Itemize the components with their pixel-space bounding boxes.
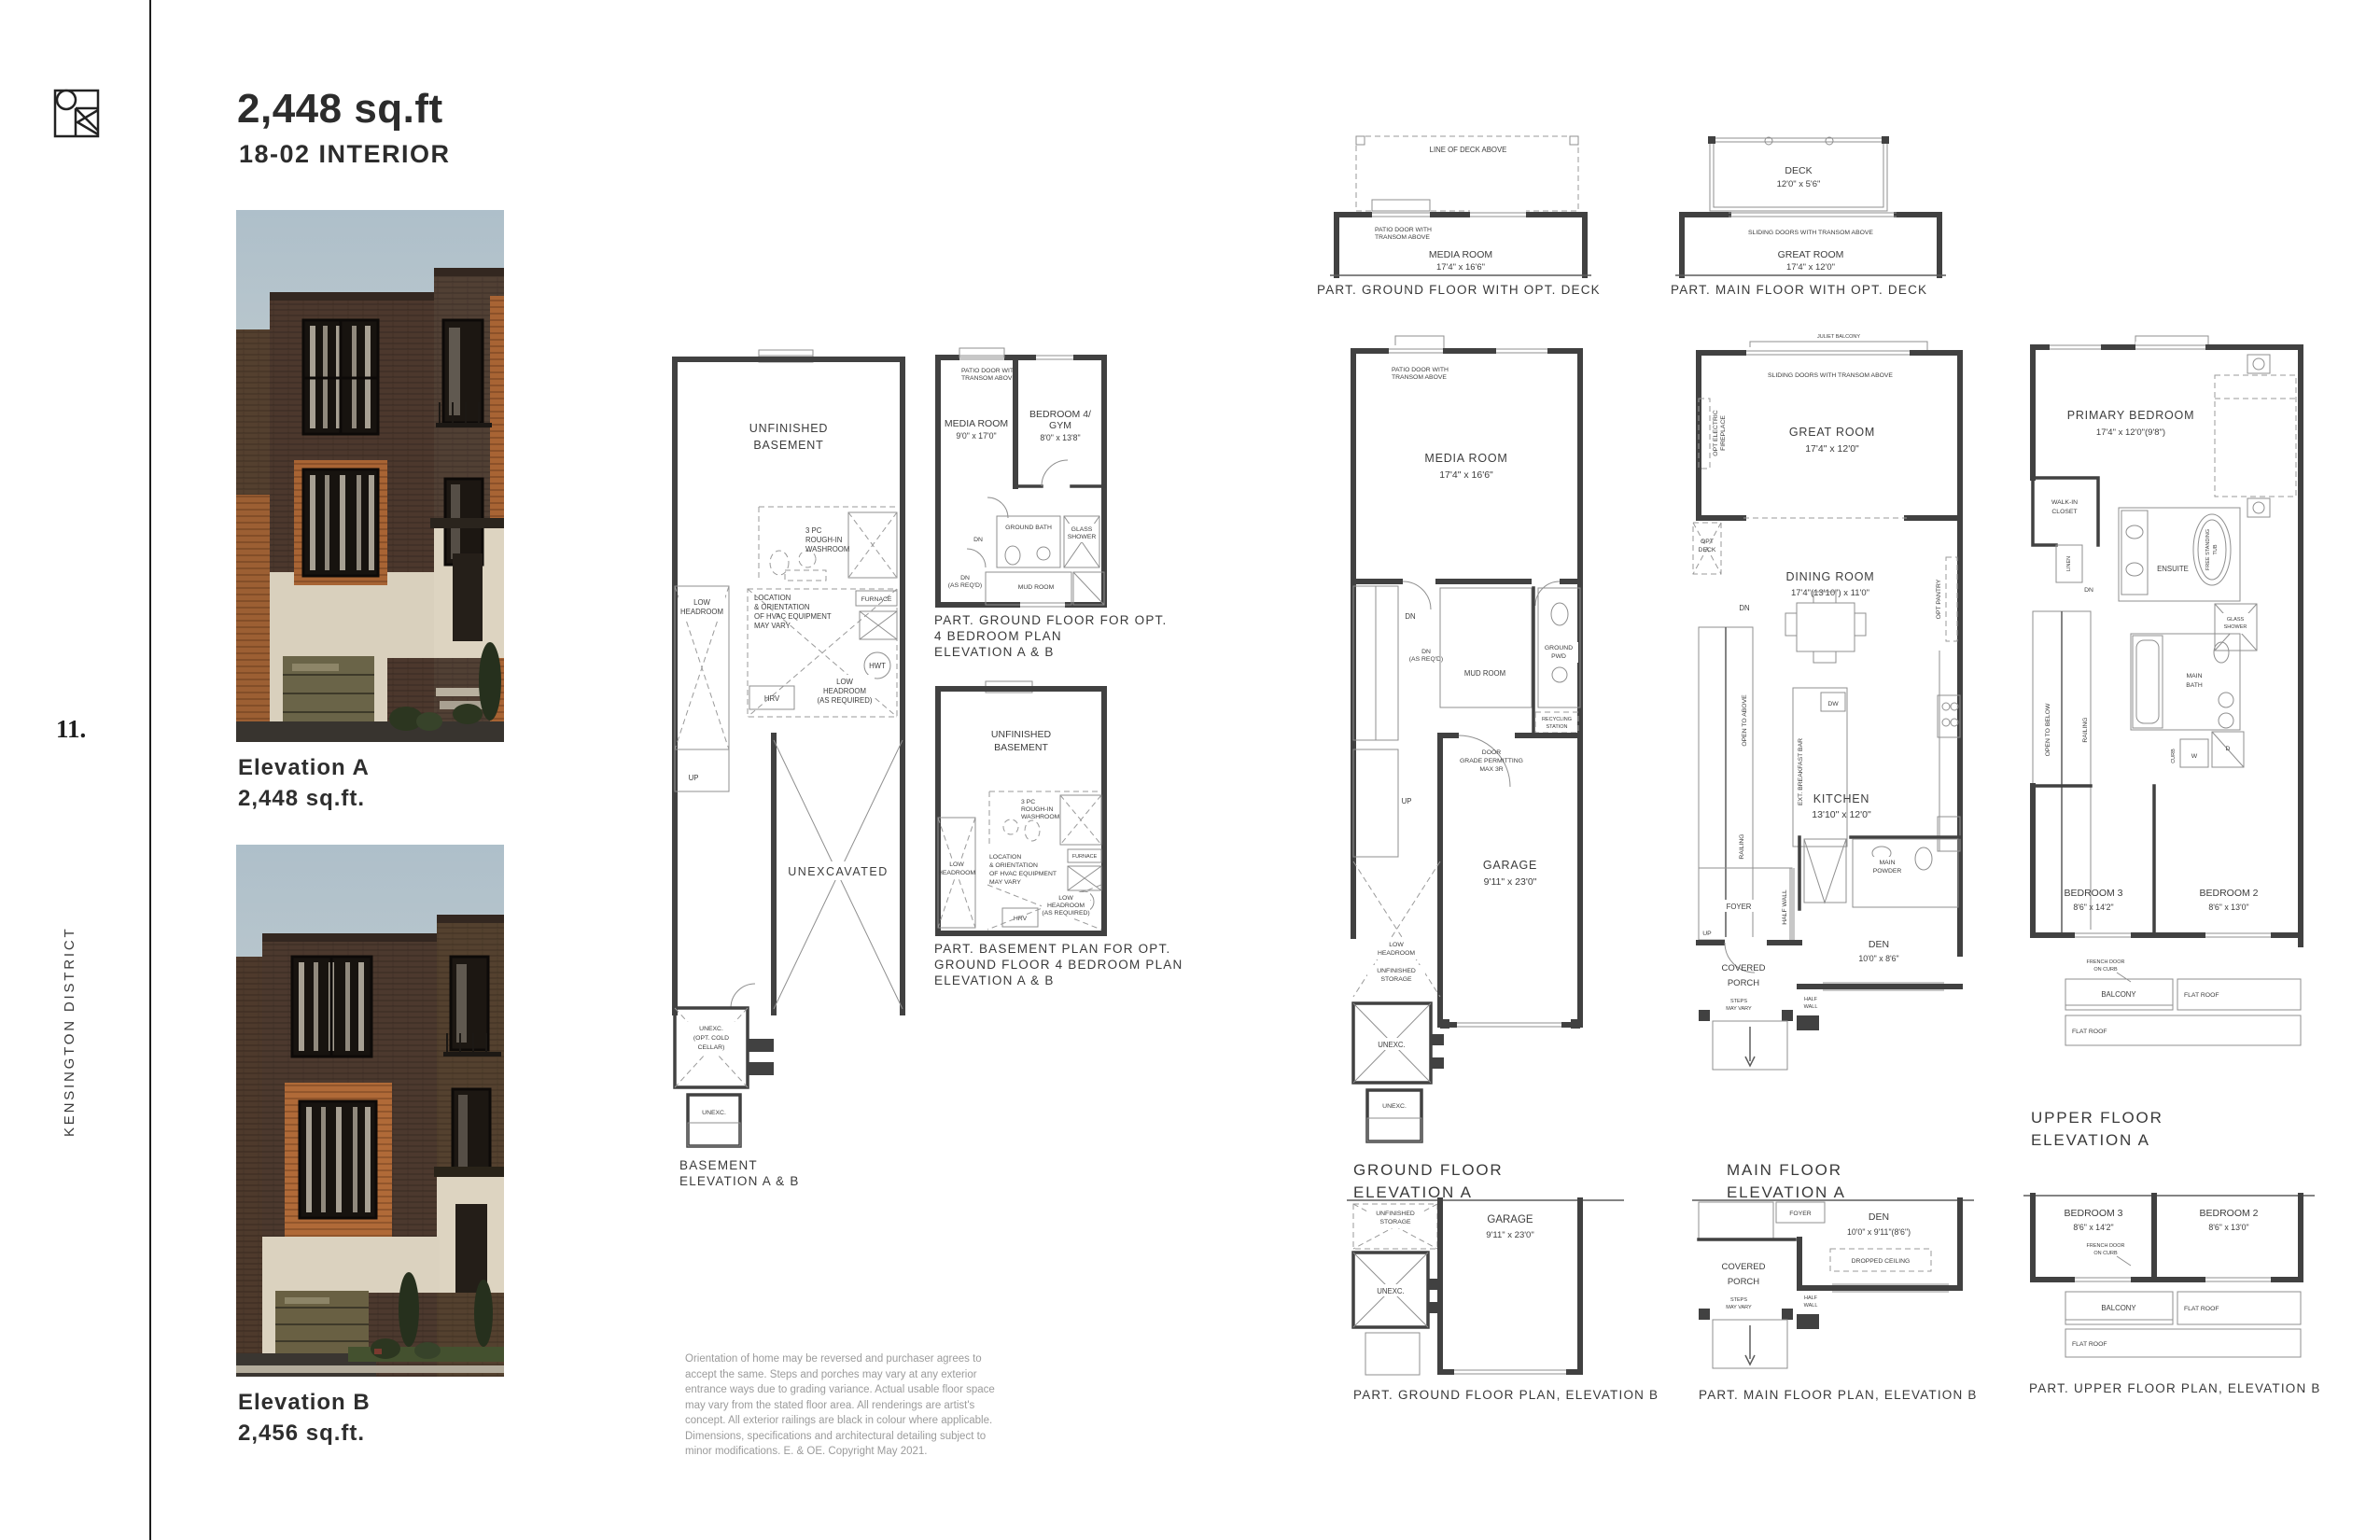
label-washroom-2: ROUGH-IN: [805, 536, 842, 544]
label-ua-bed3-dim: 8'6" x 14'2": [2073, 903, 2113, 912]
label-washroom-1: 3 PC: [805, 526, 822, 535]
caption-ground-4bed-3: ELEVATION A & B: [934, 644, 1167, 660]
label-cold-cellar-3: CELLAR): [698, 1044, 725, 1051]
label-ua-tub-1: FREE STANDING: [2205, 529, 2211, 570]
label-ma-breakfast: EXT. BREAKFAST BAR: [1798, 738, 1804, 805]
label-ub-french-2: ON CURB: [2093, 1251, 2118, 1256]
disclaimer-line-2: accept the same. Steps and porches may v…: [685, 1367, 1012, 1383]
label-ua-d: D: [2226, 746, 2231, 752]
label-ma-powder-1: MAIN: [1880, 860, 1896, 866]
label-ga-garage: GARAGE: [1483, 859, 1537, 872]
disclaimer-line-7: minor modifications. E. & OE. Copyright …: [685, 1444, 1012, 1460]
label-mb-porch-2: PORCH: [1728, 1277, 1759, 1287]
plan-ground-b: UNFINISHED STORAGE GARAGE 9'11" x 23'0" …: [1347, 1195, 1624, 1381]
label-ga-garage-dim: 9'11" x 23'0": [1484, 876, 1537, 888]
label-ub-bed2: BEDROOM 2: [2199, 1208, 2258, 1219]
plan-basement: UNFINISHED BASEMENT 3 PC ROUGH-IN WASHRO…: [665, 348, 938, 1162]
label-hvac4-1: LOCATION: [989, 854, 1021, 861]
caption-ground-a-1: GROUND FLOOR: [1353, 1159, 1503, 1182]
label-gd-patio-1: PATIO DOOR WITH: [1375, 227, 1432, 233]
page-subtitle: 18-02 INTERIOR: [239, 140, 451, 169]
label-washroom-3: WASHROOM: [805, 545, 849, 553]
label-gb-garage: GARAGE: [1487, 1214, 1533, 1225]
label-ga-media-dim: 17'4" x 16'6": [1439, 469, 1493, 481]
label-up: UP: [689, 774, 699, 782]
plan-ground-a: PATIO DOOR WITH TRANSOM ABOVE MEDIA ROOM…: [1347, 334, 1624, 1157]
label-mb-porch-1: COVERED: [1722, 1262, 1766, 1272]
label-ga-lowhead-2: HEADROOM: [1378, 950, 1415, 957]
label-gd-room: MEDIA ROOM: [1429, 249, 1492, 260]
label-mb-den-dim: 10'0" x 9'11"(8'6"): [1847, 1227, 1911, 1237]
label-ua-flatroof-2: FLAT ROOF: [2072, 1029, 2107, 1035]
label-ma-sliding: SLIDING DOORS WITH TRANSOM ABOVE: [1768, 372, 1893, 379]
label-sliding-doors: SLIDING DOORS WITH TRANSOM ABOVE: [1748, 230, 1873, 236]
plan-part-basement-4bed: UNFINISHED BASEMENT 3 PC ROUGH-IN WASHRO…: [931, 679, 1111, 945]
label-ua-bath-2: BATH: [2186, 682, 2203, 689]
label-ma-porch-1: COVERED: [1722, 963, 1766, 973]
label-ga-storage-2: STORAGE: [1380, 976, 1412, 983]
caption-upper-a-1: UPPER FLOOR: [2031, 1107, 2163, 1129]
label-ga-mud: MUD ROOM: [1464, 669, 1505, 678]
label-mb-foyer: FOYER: [1789, 1211, 1812, 1217]
label-ma-fireplace-2: FIREPLACE: [1720, 415, 1727, 451]
label-ub-flatroof-2: FLAT ROOF: [2072, 1341, 2107, 1348]
label-ua-balcony: BALCONY: [2101, 990, 2136, 999]
label-furnace4: FURNACE: [1072, 854, 1098, 860]
label-bed4-2: GYM: [1049, 420, 1071, 431]
label-bed4-dim: 8'0" x 13'8": [1040, 433, 1080, 442]
label-ma-pantry: OPT PANTRY: [1936, 579, 1942, 619]
label-ga-recycling-1: RECYCLING: [1542, 717, 1572, 722]
label-ma-dw: DW: [1827, 701, 1839, 707]
label-unf-basement-2: BASEMENT: [994, 742, 1048, 753]
label-hvac-3: OF HVAC EQUIPMENT: [754, 612, 832, 621]
label-patio-door-2: TRANSOM ABOVE: [961, 375, 1016, 382]
label-ma-dining: DINING ROOM: [1786, 570, 1875, 583]
caption-ground-deck: PART. GROUND FLOOR WITH OPT. DECK: [1317, 282, 1601, 298]
elevation-b-name: Elevation B: [238, 1387, 371, 1418]
label-glass-shower-2: SHOWER: [1068, 534, 1097, 540]
label-ua-ensuite: ENSUITE: [2157, 565, 2189, 573]
caption-basement-4bed-2: GROUND FLOOR 4 BEDROOM PLAN: [934, 957, 1183, 973]
label-ga-storage-1: UNFINISHED: [1377, 968, 1416, 974]
label-unexc-stub: UNEXC.: [702, 1110, 726, 1116]
elevation-b-area: 2,456 sq.ft.: [238, 1418, 371, 1449]
label-ub-french-1: FRENCH DOOR: [2087, 1243, 2125, 1249]
sidebar-district-label: KENSINGTON DISTRICT: [62, 927, 77, 1137]
label-ma-powder-2: POWDER: [1873, 868, 1902, 875]
label-gb-storage-1: UNFINISHED: [1376, 1211, 1415, 1217]
caption-upper-b: PART. UPPER FLOOR PLAN, ELEVATION B: [2029, 1380, 2321, 1396]
label-ga-dnreq-1: DN: [1421, 649, 1431, 655]
label-unfinished-basement-2: BASEMENT: [753, 439, 823, 452]
label-ma-optdeck-2: DECK: [1699, 547, 1716, 553]
caption-basement-4bed: PART. BASEMENT PLAN FOR OPT. GROUND FLOO…: [934, 941, 1183, 988]
label-ma-halfwall-2: WALL: [1804, 1004, 1818, 1010]
label-ma-halfwall-1: HALF: [1804, 997, 1818, 1002]
elevation-b-caption: Elevation B 2,456 sq.ft.: [238, 1387, 371, 1449]
label-ga-door-2: GRADE PERMITTING: [1460, 758, 1523, 764]
label-ua-primary: PRIMARY BEDROOM: [2067, 409, 2195, 422]
label-ga-unexc2: UNEXC.: [1382, 1103, 1407, 1110]
label-media-dim: 9'0" x 17'0": [956, 431, 996, 441]
label-ma-great-dim: 17'4" x 12'0": [1805, 443, 1859, 455]
label-mb-steps-1: STEPS: [1730, 1297, 1747, 1303]
label-washroom4-3: WASHROOM: [1021, 814, 1060, 820]
elevation-a-caption: Elevation A 2,448 sq.ft.: [238, 752, 370, 814]
label-ga-recycling-2: STATION: [1546, 724, 1567, 730]
label-low-headroom-1: LOW: [693, 598, 710, 607]
label-ua-french-1: FRENCH DOOR: [2087, 959, 2125, 965]
label-furnace: FURNACE: [861, 596, 892, 603]
disclaimer-line-3: entrance ways due to grading variance. A…: [685, 1382, 1012, 1398]
label-ga-pwd-2: PWD: [1551, 653, 1566, 660]
label-ma-foyer: FOYER: [1727, 903, 1752, 911]
disclaimer: Orientation of home may be reversed and …: [685, 1351, 1012, 1460]
label-ma-kitchen-dim: 13'10" x 12'0": [1812, 809, 1871, 820]
caption-upper-a: UPPER FLOOR ELEVATION A: [2031, 1107, 2163, 1152]
label-md-room: GREAT ROOM: [1778, 249, 1844, 260]
label-ua-dn: DN: [2084, 587, 2093, 594]
label-ua-bed3: BEDROOM 3: [2064, 888, 2122, 899]
label-hvac4-4: MAY VARY: [989, 879, 1021, 886]
elevation-a-name: Elevation A: [238, 752, 370, 783]
label-ua-tub-2: TUB: [2213, 544, 2219, 554]
plan-main-opt-deck: DECK 12'0" x 5'6" SLIDING DOORS WITH TRA…: [1675, 129, 1946, 287]
caption-ground-b: PART. GROUND FLOOR PLAN, ELEVATION B: [1353, 1387, 1659, 1403]
label-washroom4-1: 3 PC: [1021, 799, 1035, 805]
label-gd-room-dim: 17'4" x 16'6": [1436, 262, 1485, 273]
plan-ground-opt-deck: LINE OF DECK ABOVE PATIO DOOR WITH TRANS…: [1330, 129, 1591, 287]
label-gd-patio-2: TRANSOM ABOVE: [1375, 234, 1430, 241]
plan-main-b: FOYER DEN 10'0" x 9'11"(8'6") DROPPED CE…: [1692, 1195, 1974, 1381]
label-hvac-1: LOCATION: [754, 594, 791, 602]
elevation-a-area: 2,448 sq.ft.: [238, 783, 370, 814]
label-ma-den-dim: 10'0" x 8'6": [1858, 954, 1898, 963]
label-unf-basement-1: UNFINISHED: [991, 729, 1052, 740]
label-cold-cellar-1: UNEXC.: [699, 1026, 723, 1032]
label-ua-wic-1: WALK-IN: [2051, 499, 2078, 506]
label-low-headroom-req-2: HEADROOM: [823, 687, 866, 695]
label-low-req4-1: LOW: [1058, 895, 1073, 902]
label-washroom4-2: ROUGH-IN: [1021, 806, 1053, 813]
label-low-head4-2: HEADROOM: [938, 870, 975, 876]
label-bed4-1: BEDROOM 4/: [1029, 409, 1091, 420]
plan-upper-a: PRIMARY BEDROOM 17'4" x 12'0"(9'8") WALK…: [2023, 329, 2315, 1150]
label-ma-steps-1: STEPS: [1730, 999, 1747, 1004]
label-ub-bed3: BEDROOM 3: [2064, 1208, 2122, 1219]
plan-main-a: JULIET BALCONY SLIDING DOORS WITH TRANSO…: [1692, 329, 1974, 1164]
label-dn-req-2: (AS REQ'D): [948, 582, 982, 589]
disclaimer-line-1: Orientation of home may be reversed and …: [685, 1351, 1012, 1367]
label-mud-room: MUD ROOM: [1018, 584, 1055, 591]
caption-basement-4bed-3: ELEVATION A & B: [934, 973, 1183, 988]
label-ga-pwd-1: GROUND: [1545, 645, 1573, 651]
label-ub-balcony: BALCONY: [2101, 1304, 2136, 1312]
label-ma-kitchen: KITCHEN: [1813, 792, 1869, 805]
label-md-room-dim: 17'4" x 12'0": [1786, 262, 1835, 273]
label-ma-steps-2: MAY VARY: [1726, 1006, 1752, 1012]
label-ma-den: DEN: [1869, 939, 1889, 950]
page-number: 11.: [56, 715, 86, 744]
caption-basement-2: ELEVATION A & B: [679, 1173, 800, 1189]
label-dn-req-1: DN: [960, 575, 970, 581]
caption-basement-4bed-1: PART. BASEMENT PLAN FOR OPT.: [934, 941, 1183, 957]
label-ga-patio-1: PATIO DOOR WITH: [1392, 367, 1449, 373]
label-low-headroom-req-1: LOW: [836, 678, 853, 686]
label-ua-w: W: [2191, 753, 2198, 760]
page-title: 2,448 sq.ft: [237, 86, 443, 133]
label-ma-fireplace-1: OPT ELECTRIC: [1713, 410, 1719, 455]
label-ga-door-1: DOOR: [1482, 749, 1501, 756]
label-ground-bath: GROUND BATH: [1005, 525, 1052, 531]
label-ua-shower-1: GLASS: [2227, 617, 2245, 623]
caption-main-deck: PART. MAIN FLOOR WITH OPT. DECK: [1671, 282, 1927, 298]
label-ma-halfwall-v: HALF WALL: [1782, 889, 1788, 925]
label-ga-media: MEDIA ROOM: [1424, 452, 1507, 465]
label-ub-bed3-dim: 8'6" x 14'2": [2073, 1223, 2113, 1232]
caption-ground-4bed-2: 4 BEDROOM PLAN: [934, 628, 1167, 644]
label-ua-linen: LINEN: [2066, 556, 2072, 571]
label-ua-railing: RAILING: [2082, 717, 2089, 742]
label-low-req4-2: HEADROOM: [1047, 903, 1085, 909]
elevation-a-photo: [236, 210, 504, 742]
label-juliet: JULIET BALCONY: [1817, 334, 1860, 340]
label-hvac-2: & ORIENTATION: [754, 603, 810, 611]
label-ga-up: UP: [1402, 797, 1412, 805]
label-low-head4-1: LOW: [949, 861, 964, 868]
label-gb-unexc: UNEXC.: [1377, 1287, 1404, 1295]
label-unexcavated: UNEXCAVATED: [788, 865, 889, 878]
label-hvac4-2: & ORIENTATION: [989, 862, 1038, 869]
label-ma-optdeck-1: OPT: [1701, 539, 1714, 545]
label-ub-bed2-dim: 8'6" x 13'0": [2208, 1223, 2248, 1232]
label-ua-bath-1: MAIN: [2187, 673, 2203, 679]
caption-main-b: PART. MAIN FLOOR PLAN, ELEVATION B: [1699, 1387, 1978, 1403]
label-patio-door-1: PATIO DOOR WITH: [961, 368, 1018, 374]
label-glass-shower-1: GLASS: [1071, 526, 1093, 533]
label-ua-bed2: BEDROOM 2: [2199, 888, 2258, 899]
caption-upper-a-2: ELEVATION A: [2031, 1129, 2163, 1152]
disclaimer-line-5: concept. All exterior railings are black…: [685, 1413, 1012, 1429]
label-ua-wic-2: CLOSET: [2051, 509, 2077, 515]
label-ma-dining-dim: 17'4"(13'10") x 11'0": [1791, 588, 1869, 598]
caption-basement-1: BASEMENT: [679, 1157, 800, 1173]
label-ma-porch-2: PORCH: [1728, 978, 1759, 988]
brochure-page: 11. KENSINGTON DISTRICT 2,448 sq.ft 18-0…: [0, 0, 2380, 1540]
label-gb-garage-dim: 9'11" x 23'0": [1486, 1230, 1533, 1240]
label-hwt: HWT: [869, 662, 886, 670]
label-media-room: MEDIA ROOM: [945, 418, 1008, 429]
label-ua-flatroof-1: FLAT ROOF: [2184, 992, 2219, 999]
label-unfinished-basement: UNFINISHED: [749, 422, 828, 435]
label-mb-halfwall-2: WALL: [1804, 1303, 1818, 1309]
label-ub-flatroof-1: FLAT ROOF: [2184, 1306, 2219, 1312]
label-hrv: HRV: [764, 694, 780, 703]
label-ua-curb: CURB: [2171, 749, 2177, 763]
label-mb-halfwall-1: HALF: [1804, 1295, 1818, 1301]
label-ua-bed2-dim: 8'6" x 13'0": [2208, 903, 2248, 912]
label-deck-dim: 12'0" x 5'6": [1777, 179, 1821, 189]
label-ga-unexc: UNEXC.: [1378, 1041, 1405, 1049]
label-line-of-deck: LINE OF DECK ABOVE: [1430, 146, 1507, 154]
caption-basement: BASEMENT ELEVATION A & B: [679, 1157, 800, 1189]
label-ga-lowhead-1: LOW: [1389, 942, 1404, 948]
label-ua-openbelow: OPEN TO BELOW: [2045, 703, 2051, 756]
label-mb-dropped: DROPPED CEILING: [1852, 1258, 1911, 1265]
label-ga-door-3: MAX 3R: [1479, 766, 1503, 773]
label-mb-den: DEN: [1869, 1211, 1889, 1223]
caption-ground-4bed: PART. GROUND FLOOR FOR OPT. 4 BEDROOM PL…: [934, 612, 1167, 660]
label-ga-patio-2: TRANSOM ABOVE: [1392, 374, 1447, 381]
label-hvac-4: MAY VARY: [754, 622, 791, 630]
label-ma-railing: RAILING: [1739, 833, 1745, 859]
label-gb-storage-2: STORAGE: [1379, 1219, 1411, 1225]
elevation-b-photo: [236, 845, 504, 1377]
label-cold-cellar-2: (OPT. COLD: [693, 1035, 729, 1042]
plan-upper-b: BEDROOM 3 8'6" x 14'2" BEDROOM 2 8'6" x …: [2023, 1191, 2315, 1373]
label-ga-dnreq-2: (AS REQ'D): [1409, 656, 1443, 663]
label-deck: DECK: [1785, 165, 1812, 176]
label-ga-dn: DN: [1405, 612, 1415, 621]
label-ma-great: GREAT ROOM: [1789, 426, 1875, 439]
label-ua-primary-dim: 17'4" x 12'0"(9'8"): [2096, 427, 2165, 438]
divider-line: [149, 0, 151, 1540]
label-low-req4-3: (AS REQUIRED): [1042, 910, 1089, 917]
label-low-headroom-req-3: (AS REQUIRED): [818, 696, 873, 705]
plan-part-ground-4bed: PATIO DOOR WITH TRANSOM ABOVE MEDIA ROOM…: [931, 348, 1111, 619]
disclaimer-line-6: Dimensions, specifications and architect…: [685, 1429, 1012, 1445]
kensington-logo-icon: [52, 82, 101, 140]
label-ma-dn: DN: [1739, 604, 1749, 612]
caption-main-a-1: MAIN FLOOR: [1727, 1159, 1846, 1182]
label-low-headroom-2: HEADROOM: [680, 608, 723, 616]
label-mb-steps-2: MAY VARY: [1726, 1305, 1752, 1310]
label-ua-french-2: ON CURB: [2093, 967, 2118, 973]
label-dn: DN: [973, 537, 983, 543]
label-ua-shower-2: SHOWER: [2224, 624, 2247, 630]
caption-ground-4bed-1: PART. GROUND FLOOR FOR OPT.: [934, 612, 1167, 628]
label-ma-up: UP: [1702, 931, 1712, 937]
disclaimer-line-4: may vary from the stated floor area. All…: [685, 1398, 1012, 1414]
label-ma-openabove: OPEN TO ABOVE: [1742, 694, 1748, 747]
label-hvac4-3: OF HVAC EQUIPMENT: [989, 871, 1057, 877]
